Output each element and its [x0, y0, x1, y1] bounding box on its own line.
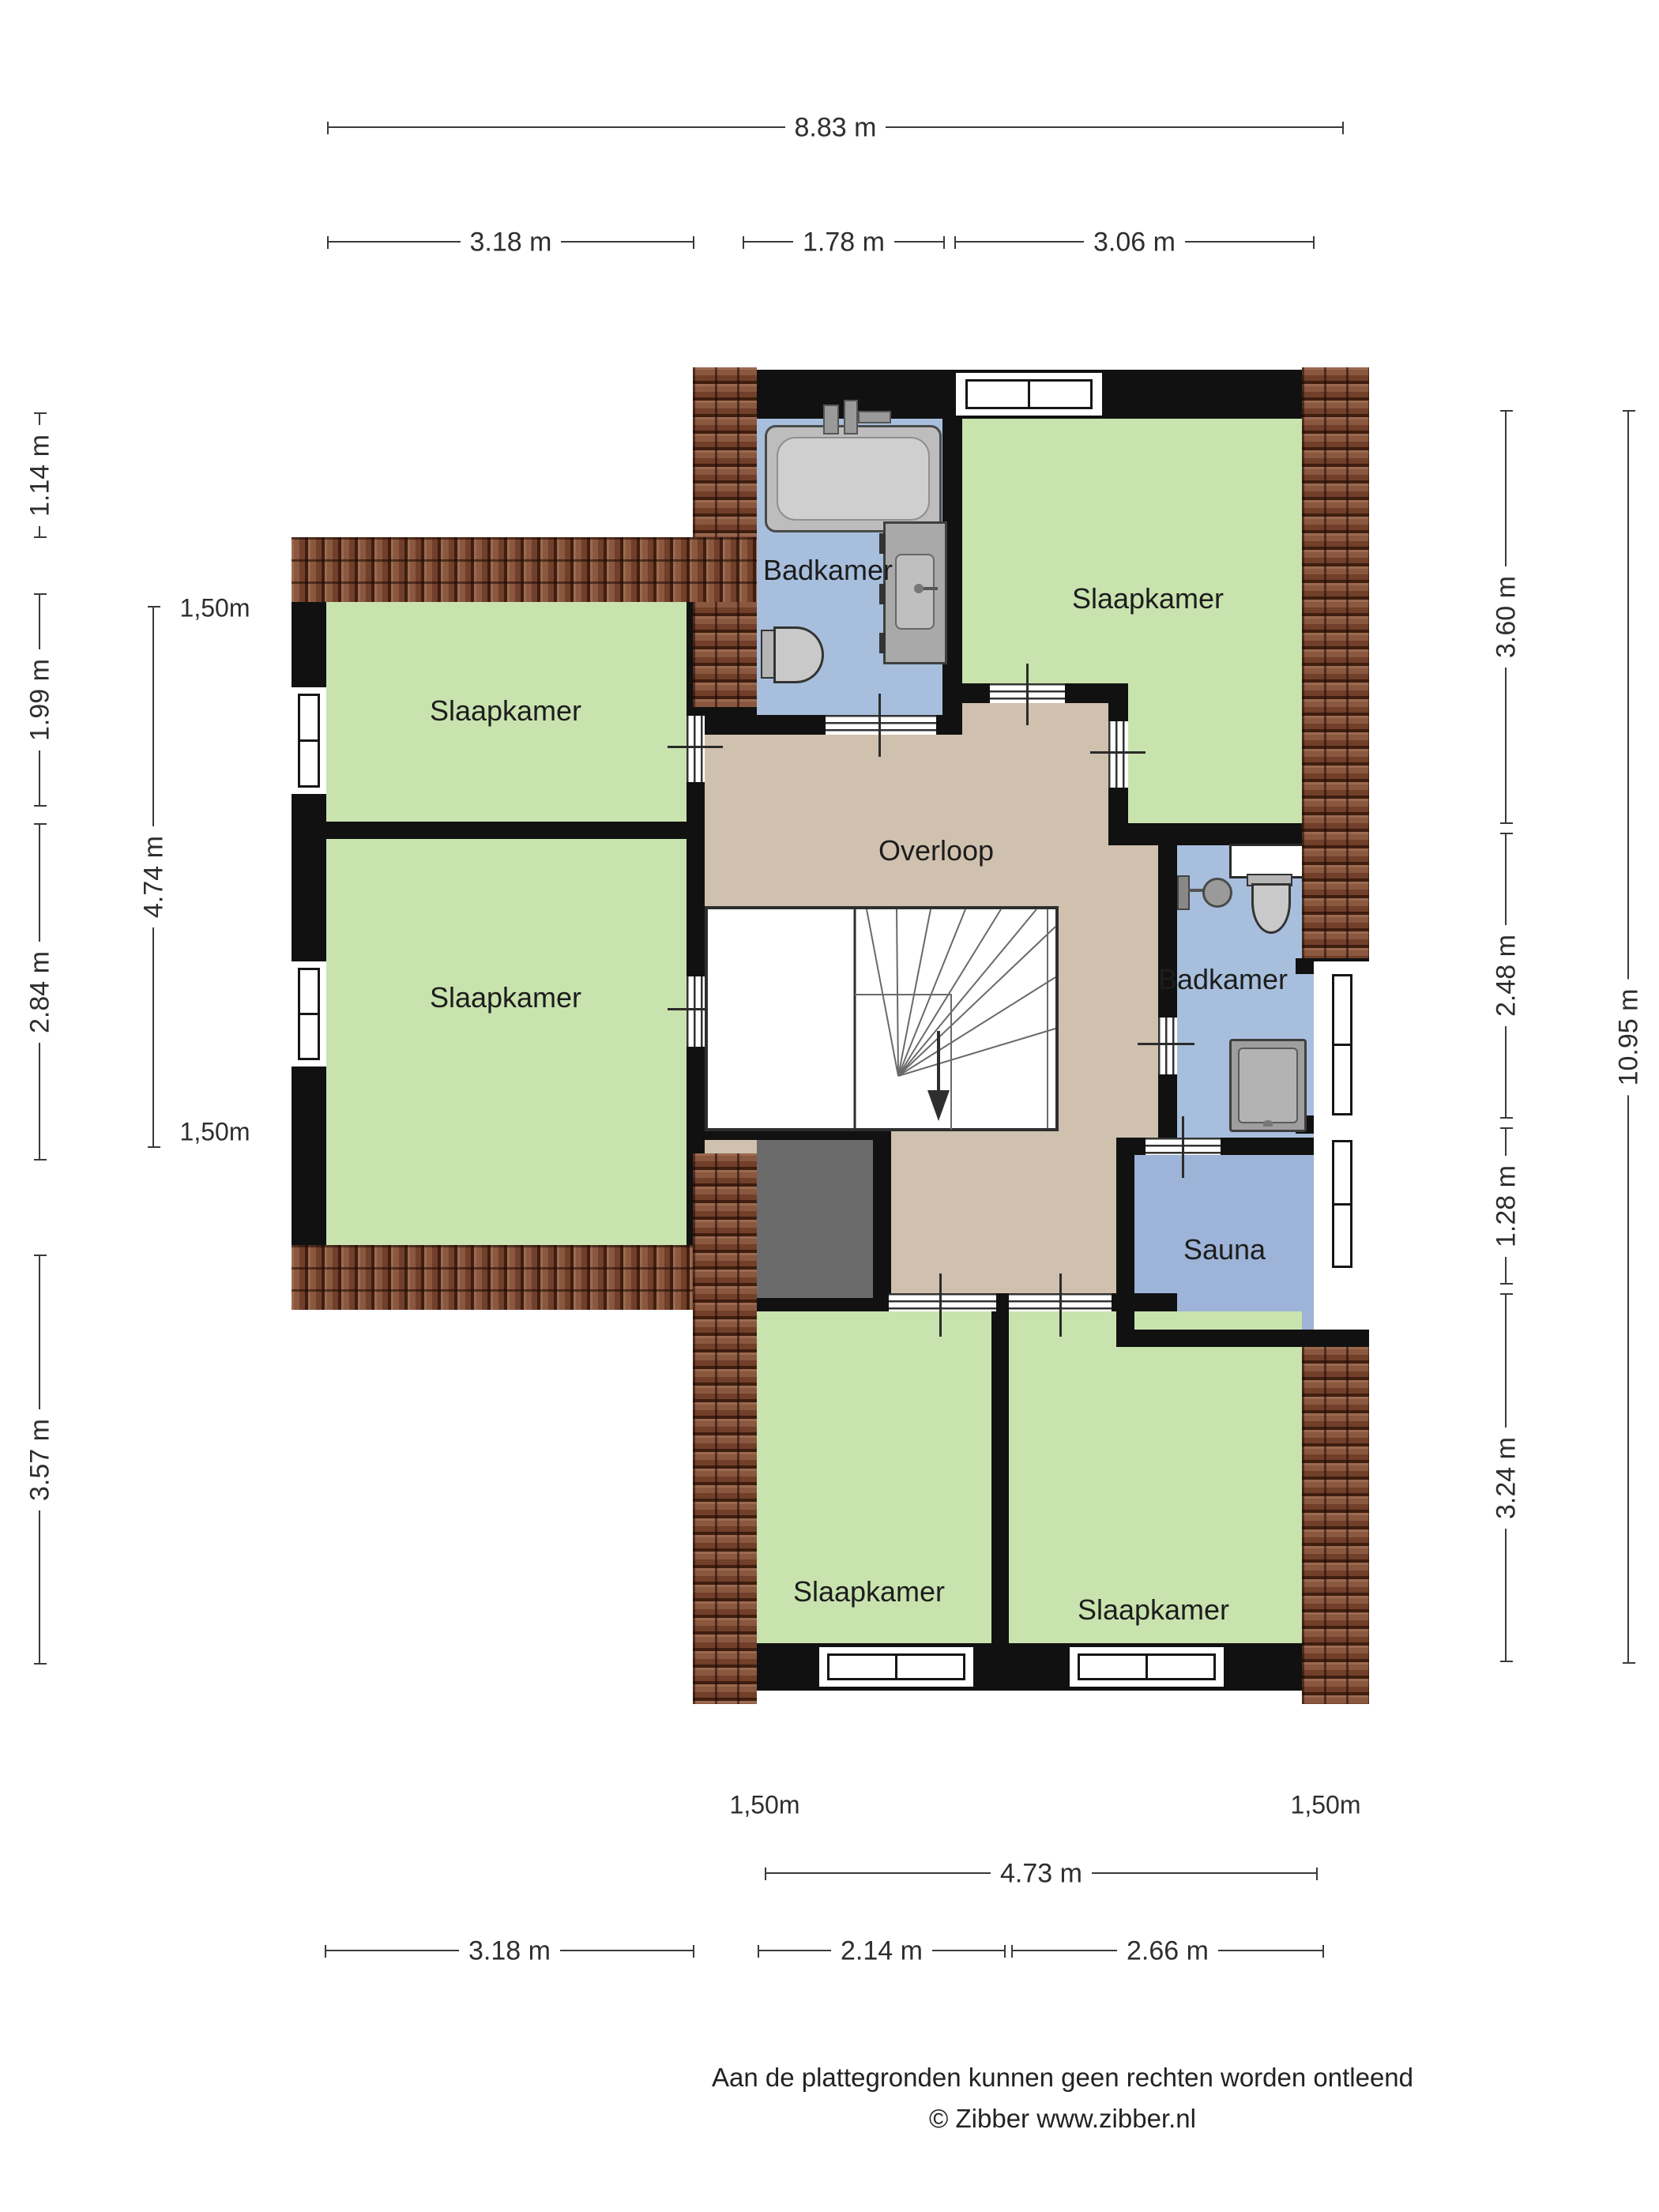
door-tick-slaapkamer-top-right: [1026, 664, 1029, 725]
window-frame-icon: [1332, 1140, 1352, 1268]
dim-top-b: 1.78 m: [743, 241, 944, 243]
window-bottom-left-room: [819, 1647, 973, 1687]
room-floor-slaapkamer-top-right: [962, 419, 1302, 683]
shower-head-icon: [1202, 878, 1232, 908]
label-slaapkamer-bottom-right: Slaapkamer: [1078, 1593, 1229, 1627]
label-slaapkamer-left-1: Slaapkamer: [430, 694, 581, 728]
dim-label: 3.18 m: [461, 226, 562, 260]
label-slaapkamer-left-2: Slaapkamer: [430, 981, 581, 1014]
label-overloop: Overloop: [878, 834, 994, 867]
copyright-text: © Zibber www.zibber.nl: [929, 2104, 1196, 2134]
ceiling-height-label: 1,50m: [180, 594, 250, 623]
shower-tray-icon: [1229, 1039, 1307, 1132]
door-badkamer-right: [1158, 1018, 1177, 1074]
dim-label: 2.48 m: [1490, 925, 1524, 1026]
dim-label: 1.28 m: [1490, 1156, 1524, 1257]
dim-top-c: 3.06 m: [955, 241, 1314, 243]
dim-left-a: 1.14 m: [39, 413, 40, 537]
label-badkamer-right: Badkamer: [1158, 963, 1288, 996]
dim-label: 3.06 m: [1084, 226, 1185, 260]
roof-band-left-bottom: [292, 1245, 757, 1310]
label-sauna: Sauna: [1183, 1233, 1266, 1266]
door-badkamer-top: [826, 715, 936, 735]
disclaimer-text: Aan de plattegronden kunnen geen rechten…: [712, 2063, 1413, 2093]
ceiling-height-label: 1,50m: [730, 1791, 800, 1820]
window-badkamer-right: [1314, 961, 1369, 1128]
door-slaapkamer-left2: [687, 976, 705, 1047]
dim-label: 3.60 m: [1490, 566, 1524, 668]
roof-band-left-top: [292, 537, 757, 602]
bathtub-icon: [765, 425, 942, 532]
dim-label: 10.95 m: [1612, 979, 1646, 1095]
wall-bottom-rooms-divider: [991, 1311, 1009, 1643]
dim-label: 1.78 m: [793, 226, 894, 260]
window-frame-icon: [965, 379, 1093, 409]
door-tick-slaapkamer-left1: [668, 746, 723, 748]
bathtub-tap-icon: [844, 400, 858, 434]
dim-bottom-a: 3.18 m: [325, 1950, 694, 1951]
dim-right-b: 2.48 m: [1505, 833, 1507, 1118]
room-floor-overloop-bulge: [962, 703, 1108, 735]
window-frame-icon: [827, 1653, 965, 1680]
window-bottom-right-room: [1070, 1647, 1224, 1687]
dim-bottom-b: 2.14 m: [758, 1950, 1005, 1951]
door-slaapkamer-top-right-side: [1108, 721, 1128, 788]
window-left-upper: [292, 687, 326, 794]
ceiling-height-label: 1,50m: [1291, 1791, 1361, 1820]
dim-label: 3.18 m: [459, 1935, 560, 1969]
wall-left-rooms-divider: [292, 822, 687, 839]
dim-right-total: 10.95 m: [1627, 411, 1629, 1663]
room-floor-slaapkamer-left-2: [326, 839, 687, 1245]
shower-valve-icon: [1177, 875, 1190, 910]
dim-bottom-c: 2.66 m: [1012, 1950, 1323, 1951]
wall-storage-right: [873, 1127, 891, 1311]
window-frame-icon: [298, 694, 320, 788]
dim-label: 3.24 m: [1490, 1428, 1524, 1529]
window-frame-icon: [298, 968, 320, 1060]
dim-right-d: 3.24 m: [1505, 1294, 1507, 1661]
label-slaapkamer-top-right: Slaapkamer: [1072, 582, 1224, 615]
dim-right-c: 1.28 m: [1505, 1128, 1507, 1284]
vanity-icon: [883, 521, 947, 664]
window-left-lower: [292, 961, 326, 1066]
stairs: [705, 906, 1059, 1131]
dim-label: 2.66 m: [1117, 1935, 1218, 1969]
dim-top-a: 3.18 m: [328, 241, 694, 243]
window-frame-icon: [1078, 1653, 1216, 1680]
dim-left-b: 1.99 m: [39, 594, 40, 806]
floorplan-page: Badkamer Slaapkamer Slaapkamer Slaapkame…: [0, 0, 1659, 2212]
door-tick-sauna: [1182, 1116, 1184, 1178]
bathtub-spout-icon: [858, 411, 891, 423]
dim-label: 1.99 m: [24, 649, 58, 750]
dim-label: 2.14 m: [831, 1935, 932, 1969]
roof-strip-bottom-left: [693, 1153, 757, 1704]
dim-label: 4.73 m: [991, 1857, 1092, 1891]
label-slaapkamer-bottom-left: Slaapkamer: [793, 1575, 945, 1608]
dim-right-a: 3.60 m: [1505, 411, 1507, 823]
door-tick-badkamer-right: [1138, 1043, 1194, 1045]
dim-label: 2.84 m: [24, 942, 58, 1043]
dim-bottom-inner: 4.73 m: [766, 1872, 1317, 1874]
roof-strip-top-right: [1302, 367, 1369, 958]
dim-label: 4.74 m: [137, 826, 171, 927]
dim-label: 1.14 m: [24, 425, 58, 526]
dim-label: 3.57 m: [24, 1409, 58, 1510]
room-floor-slaapkamer-top-right-lower: [1128, 683, 1302, 823]
door-tick-slaapkamer-top-right-side: [1090, 751, 1145, 754]
door-tick-slaapkamer-bottom-right: [1059, 1273, 1062, 1337]
window-top-wall: [956, 373, 1102, 416]
door-slaapkamer-bottom-left: [889, 1293, 996, 1311]
bathtub-tap-icon: [823, 404, 839, 434]
dim-left-d: 3.57 m: [39, 1255, 40, 1664]
door-tick-badkamer-top: [878, 694, 881, 757]
dim-left-c: 2.84 m: [39, 824, 40, 1160]
wall-sauna-bottom: [1116, 1330, 1369, 1347]
window-frame-icon: [1332, 974, 1352, 1115]
dim-top-total: 8.83 m: [328, 126, 1343, 128]
wall-storage-bottom: [757, 1298, 891, 1311]
door-tick-slaapkamer-bottom-left: [939, 1273, 942, 1337]
dim-label: 8.83 m: [785, 111, 886, 145]
ceiling-height-label: 1,50m: [180, 1118, 250, 1147]
label-badkamer-top: Badkamer: [763, 554, 893, 587]
attic-storage-area: [757, 1140, 873, 1298]
door-slaapkamer-left1: [687, 716, 705, 782]
roof-strip-bottom-right: [1302, 1347, 1369, 1704]
window-sauna: [1314, 1128, 1369, 1280]
wall-sauna-left: [1116, 1138, 1134, 1347]
dim-left-inner: 4.74 m: [152, 607, 154, 1147]
